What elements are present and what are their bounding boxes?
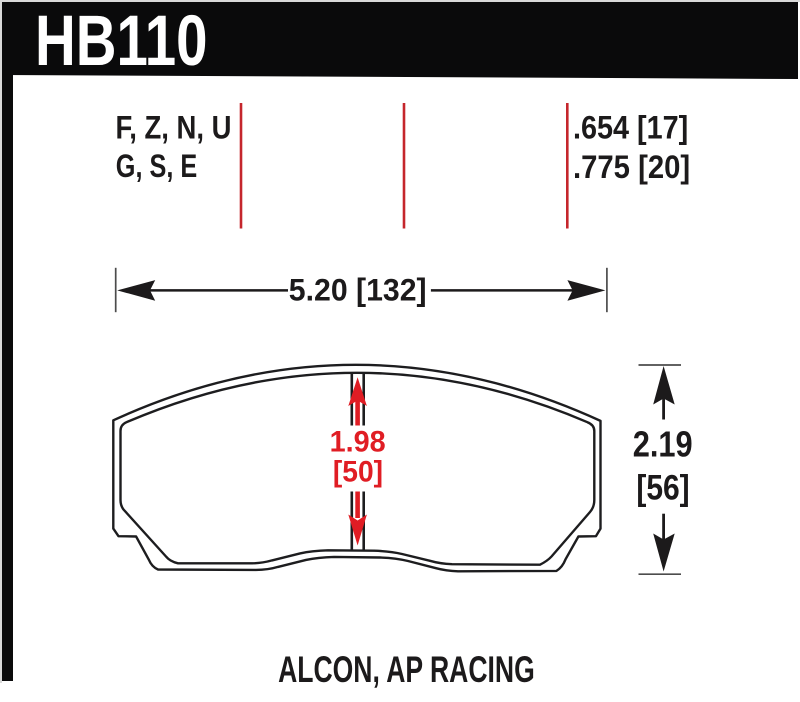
svg-text:2.19: 2.19 bbox=[633, 424, 693, 465]
svg-text:.654 [17]: .654 [17] bbox=[573, 110, 688, 146]
svg-text:.775 [20]: .775 [20] bbox=[573, 150, 690, 185]
svg-text:F, Z, N, U: F, Z, N, U bbox=[116, 110, 232, 145]
svg-text:HB110: HB110 bbox=[35, 1, 208, 81]
svg-text:5.20 [132]: 5.20 [132] bbox=[289, 272, 427, 308]
svg-text:[56]: [56] bbox=[636, 467, 689, 507]
svg-text:[50]: [50] bbox=[333, 456, 383, 489]
svg-text:G, S, E: G, S, E bbox=[116, 149, 197, 185]
svg-text:ALCON, AP RACING: ALCON, AP RACING bbox=[278, 649, 535, 690]
svg-text:1.98: 1.98 bbox=[330, 425, 386, 459]
